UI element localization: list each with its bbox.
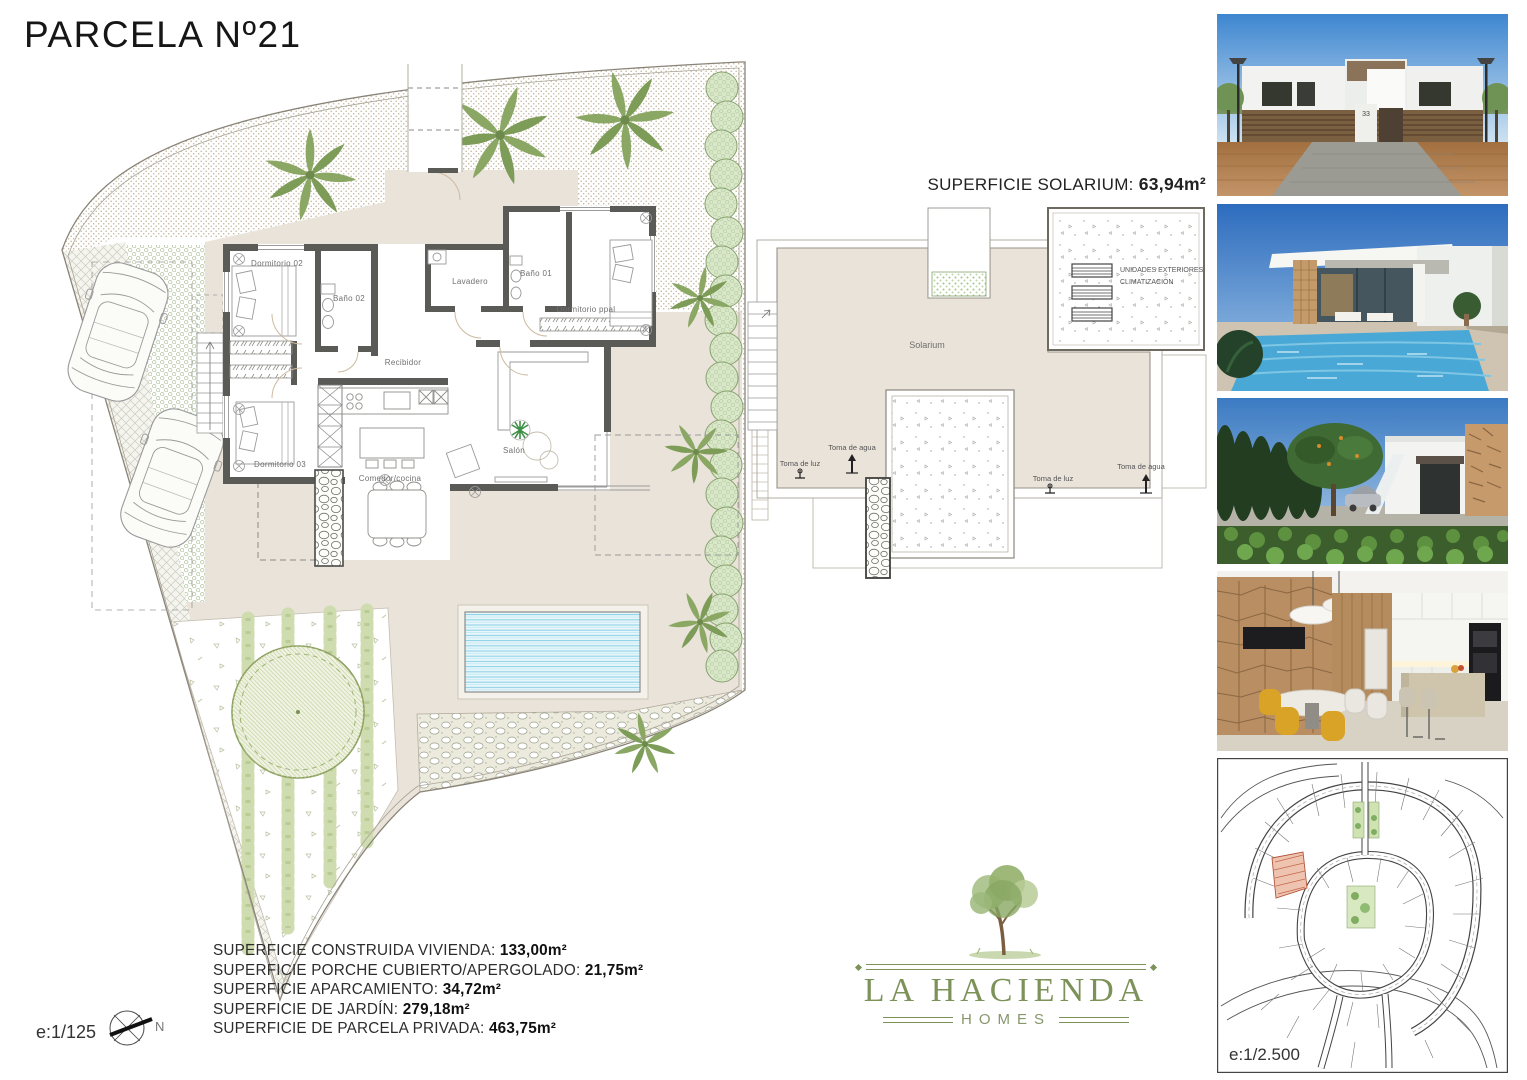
room-label-comedor: Comedor/cocina xyxy=(359,474,422,483)
solarium-plan: UNIDADES EXTERIORES CLIMATIZACIÓN Solari… xyxy=(748,208,1206,578)
area-label: SUPERFICIE CONSTRUIDA VIVIENDA: xyxy=(213,942,500,959)
photo-garden-side xyxy=(1217,398,1508,564)
solarium-heading: SUPERFICIE SOLARIUM: 63,94m² xyxy=(900,174,1206,195)
room-label-bano01: Baño 01 xyxy=(520,269,552,278)
house-number: 33 xyxy=(1362,111,1370,118)
logo-tree-icon xyxy=(941,862,1071,962)
photo-street-facade: 33 xyxy=(1217,14,1508,196)
area-row: SUPERFICIE APARCAMIENTO: 34,72m² xyxy=(213,980,643,1000)
room-label-bano02: Baño 02 xyxy=(333,294,365,303)
area-row: SUPERFICIE CONSTRUIDA VIVIENDA: 133,00m² xyxy=(213,941,643,961)
pantry-band xyxy=(318,385,342,467)
solarium-label: Solarium xyxy=(909,340,945,350)
garden xyxy=(170,608,398,982)
area-value: 21,75m² xyxy=(585,962,643,979)
site-map: e:1/2.500 xyxy=(1217,758,1508,1073)
neighbour-stair xyxy=(752,428,768,520)
solarium-heading-label: SUPERFICIE SOLARIUM: xyxy=(927,175,1138,194)
area-value: 463,75m² xyxy=(489,1020,556,1037)
north-label: N xyxy=(155,1019,164,1034)
room-label-dormitorio03: Dormitorio 03 xyxy=(254,460,306,469)
area-row: SUPERFICIE DE JARDÍN: 279,18m² xyxy=(213,1000,643,1020)
ac-label-1: UNIDADES EXTERIORES xyxy=(1120,267,1204,274)
toma-luz-right-label: Toma de luz xyxy=(1033,474,1074,483)
logo-ornament xyxy=(856,964,1156,970)
area-label: SUPERFICIE APARCAMIENTO: xyxy=(213,981,443,998)
area-value: 133,00m² xyxy=(500,942,567,959)
room-label-salon: Salón xyxy=(503,446,525,455)
area-row: SUPERFICIE DE PARCELA PRIVADA: 463,75m² xyxy=(213,1019,643,1039)
solarium-stairs xyxy=(748,302,777,430)
logo: LA HACIENDA HOMES xyxy=(856,862,1156,1028)
photo-interior-kitchen xyxy=(1217,571,1508,751)
solarium-stone-wall xyxy=(866,478,890,578)
lower-roof xyxy=(886,390,1014,558)
compass-icon xyxy=(110,1011,152,1045)
plan-sheet: PARCELA Nº21 xyxy=(0,0,1527,1080)
pool xyxy=(458,605,648,699)
logo-homes-row: HOMES xyxy=(856,1011,1156,1028)
stone-wall xyxy=(315,470,343,566)
garden-tree xyxy=(232,646,364,778)
toma-luz-left-label: Toma de luz xyxy=(780,459,821,468)
area-label: SUPERFICIE DE JARDÍN: xyxy=(213,1001,403,1018)
ac-label-2: CLIMATIZACIÓN xyxy=(1120,277,1174,286)
areas-block: SUPERFICIE CONSTRUIDA VIVIENDA: 133,00m²… xyxy=(213,941,643,1039)
room-label-recibidor: Recibidor xyxy=(385,358,422,367)
photo-pool-villa xyxy=(1217,204,1508,391)
area-label: SUPERFICIE PORCHE CUBIERTO/APERGOLADO: xyxy=(213,962,585,979)
toma-agua-left-label: Toma de agua xyxy=(828,443,876,452)
site-map-scale: e:1/2.500 xyxy=(1229,1045,1300,1064)
kitchen-island xyxy=(360,428,424,468)
scale-label: e:1/125 xyxy=(36,1022,96,1042)
room-label-dormitorio02: Dormitorio 02 xyxy=(251,259,303,268)
area-value: 34,72m² xyxy=(443,981,501,998)
solarium-planter xyxy=(928,208,990,298)
logo-subtitle: HOMES xyxy=(961,1011,1051,1028)
toma-agua-right-label: Toma de agua xyxy=(1117,462,1165,471)
area-row: SUPERFICIE PORCHE CUBIERTO/APERGOLADO: 2… xyxy=(213,961,643,981)
solarium-heading-value: 63,94m² xyxy=(1139,174,1206,194)
room-label-lavadero: Lavadero xyxy=(452,277,488,286)
dining-table xyxy=(368,481,426,547)
area-value: 279,18m² xyxy=(403,1001,470,1018)
ac-units xyxy=(1072,264,1112,321)
logo-name: LA HACIENDA xyxy=(856,972,1156,1010)
climatizacion-block: UNIDADES EXTERIORES CLIMATIZACIÓN xyxy=(1048,208,1204,350)
room-label-dormitorio-ppal: Dormitorio ppal xyxy=(557,305,616,314)
area-label: SUPERFICIE DE PARCELA PRIVADA: xyxy=(213,1020,489,1037)
